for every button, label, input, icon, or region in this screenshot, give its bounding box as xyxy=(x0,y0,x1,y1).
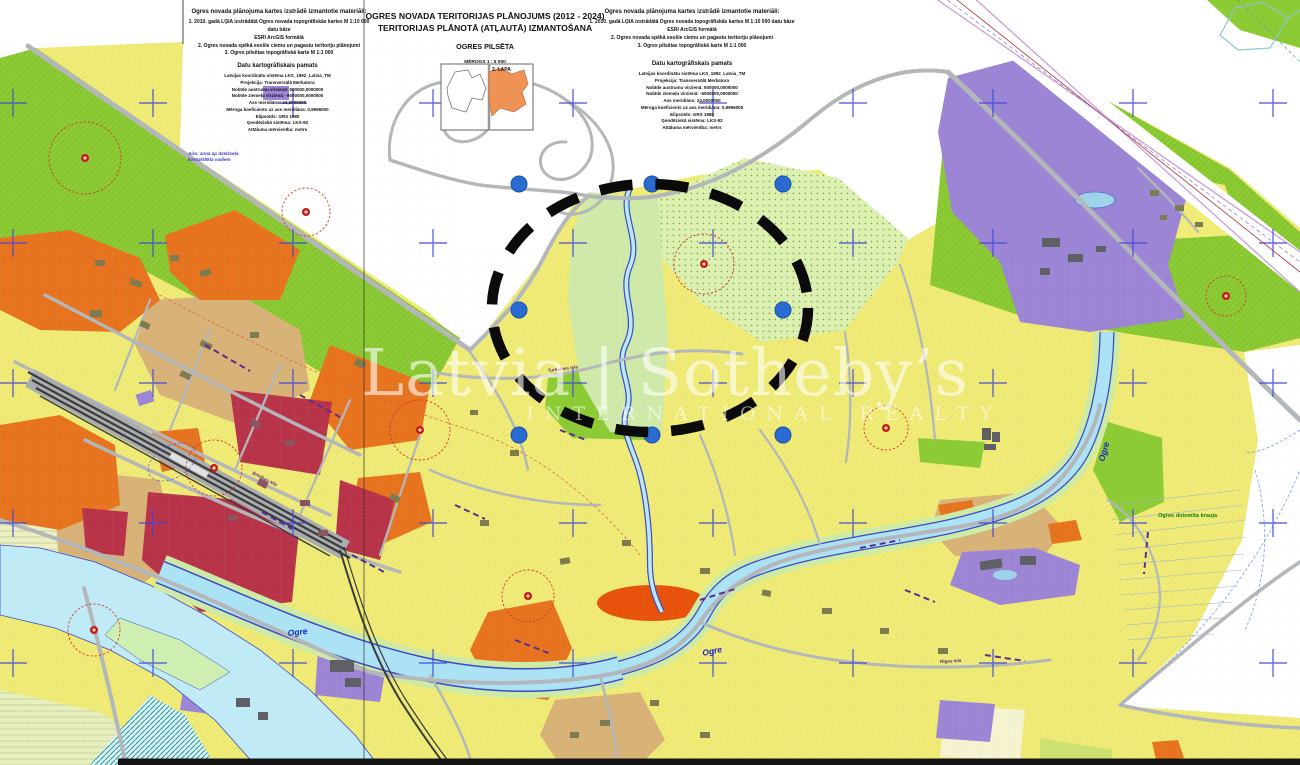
materials-line: 1. 2010. gadā LĢIA izstrādātā Ogres nova… xyxy=(184,19,374,35)
basis-line: Ass meridiāns: 24,0000000 xyxy=(617,98,767,105)
map-scale: MĒROGS 1 : 5 000 xyxy=(365,60,605,65)
railway-zone-note: Aizs. zona ap dzelzceļa kontakttīkla vad… xyxy=(188,151,283,164)
basis-line: Latvijas koordinātu sistēma LKS_1992_Lat… xyxy=(617,71,767,78)
basis-title: Datu kartogrāfiskais pamats xyxy=(617,60,767,69)
materials-line: ESRI ArcGIS formātā xyxy=(562,27,822,35)
basis-block-right: Datu kartogrāfiskais pamats Latvijas koo… xyxy=(617,60,767,132)
basis-line: Ass meridiāns: 24,0000000 xyxy=(205,100,350,107)
basis-line: Latvijas koordinātu sistēma LKS_1992_Lat… xyxy=(205,73,350,80)
materials-line: 1. 2010. gadā LĢIA izstrādātā Ogres nova… xyxy=(562,19,822,27)
basis-line: Projekcija: Transversālā Merkatora xyxy=(205,80,350,87)
river-label-ogre-west: Ogre xyxy=(287,626,308,638)
materials-block-left: Ogres novada plānojuma kartes izstrādē i… xyxy=(184,8,374,58)
basis-line: Attāluma mērvienība: metrs xyxy=(205,127,350,134)
basis-line: Attāluma mērvienība: metrs xyxy=(617,125,767,132)
materials-line: 2. Ogres novada spēkā esošie ciemu un pa… xyxy=(184,43,374,51)
basis-block-left: Datu kartogrāfiskais pamats Latvijas koo… xyxy=(205,62,350,134)
basis-line: Elipsoīds: GRS 1980 xyxy=(205,114,350,121)
materials-title: Ogres novada plānojuma kartes izstrādē i… xyxy=(184,8,374,17)
basis-line: Mēroga koeficients uz ass meridiāna: 0,9… xyxy=(205,107,350,114)
basis-title: Datu kartogrāfiskais pamats xyxy=(205,62,350,71)
basis-line: Nobīde ziemeļu virzienā: -6000000,000000… xyxy=(617,91,767,98)
basis-line: Projekcija: Transversālā Merkatora xyxy=(617,78,767,85)
materials-line: ESRI ArcGIS formātā xyxy=(184,35,374,43)
basis-line: Nobīde ziemeļu virzienā: -6000000,000000… xyxy=(205,93,350,100)
inset-sheet-label: 2. LAPA xyxy=(492,67,511,73)
materials-line: 3. Ogres pilsētas topogrāfiskā karte M 1… xyxy=(562,43,822,51)
materials-title: Ogres novada plānojuma kartes izstrādē i… xyxy=(562,8,822,17)
materials-block-right: Ogres novada plānojuma kartes izstrādē i… xyxy=(562,8,822,50)
basis-line: Ģeodēziskā sistēma: LKS-92 xyxy=(617,118,767,125)
sheet-bottom-border xyxy=(118,759,1300,765)
inset-locator-map xyxy=(441,64,533,130)
basis-line: Mēroga koeficients uz ass meridiāna: 0,9… xyxy=(617,105,767,112)
materials-line: 2. Ogres novada spēkā esošie ciemu un pa… xyxy=(562,35,822,43)
basis-line: Nobīde austrumu virzienā: 500000,0000000 xyxy=(205,87,350,94)
basis-line: Ģeodēziskā sistēma: LKS-92 xyxy=(205,120,350,127)
ogre-zoning-map-sheet: Ogre Ogre Ogre Ogres dolomīta krauja Tur… xyxy=(0,0,1300,765)
materials-line: 3. Ogres pilsētas topogrāfiskā karte M 1… xyxy=(184,50,374,58)
basis-line: Nobīde austrumu virzienā: 500000,0000000 xyxy=(617,85,767,92)
note-line: kontakttīkla vadiem xyxy=(188,157,283,163)
basis-line: Elipsoīds: GRS 1980 xyxy=(617,112,767,119)
cliff-label: Ogres dolomīta krauja xyxy=(1158,513,1218,519)
